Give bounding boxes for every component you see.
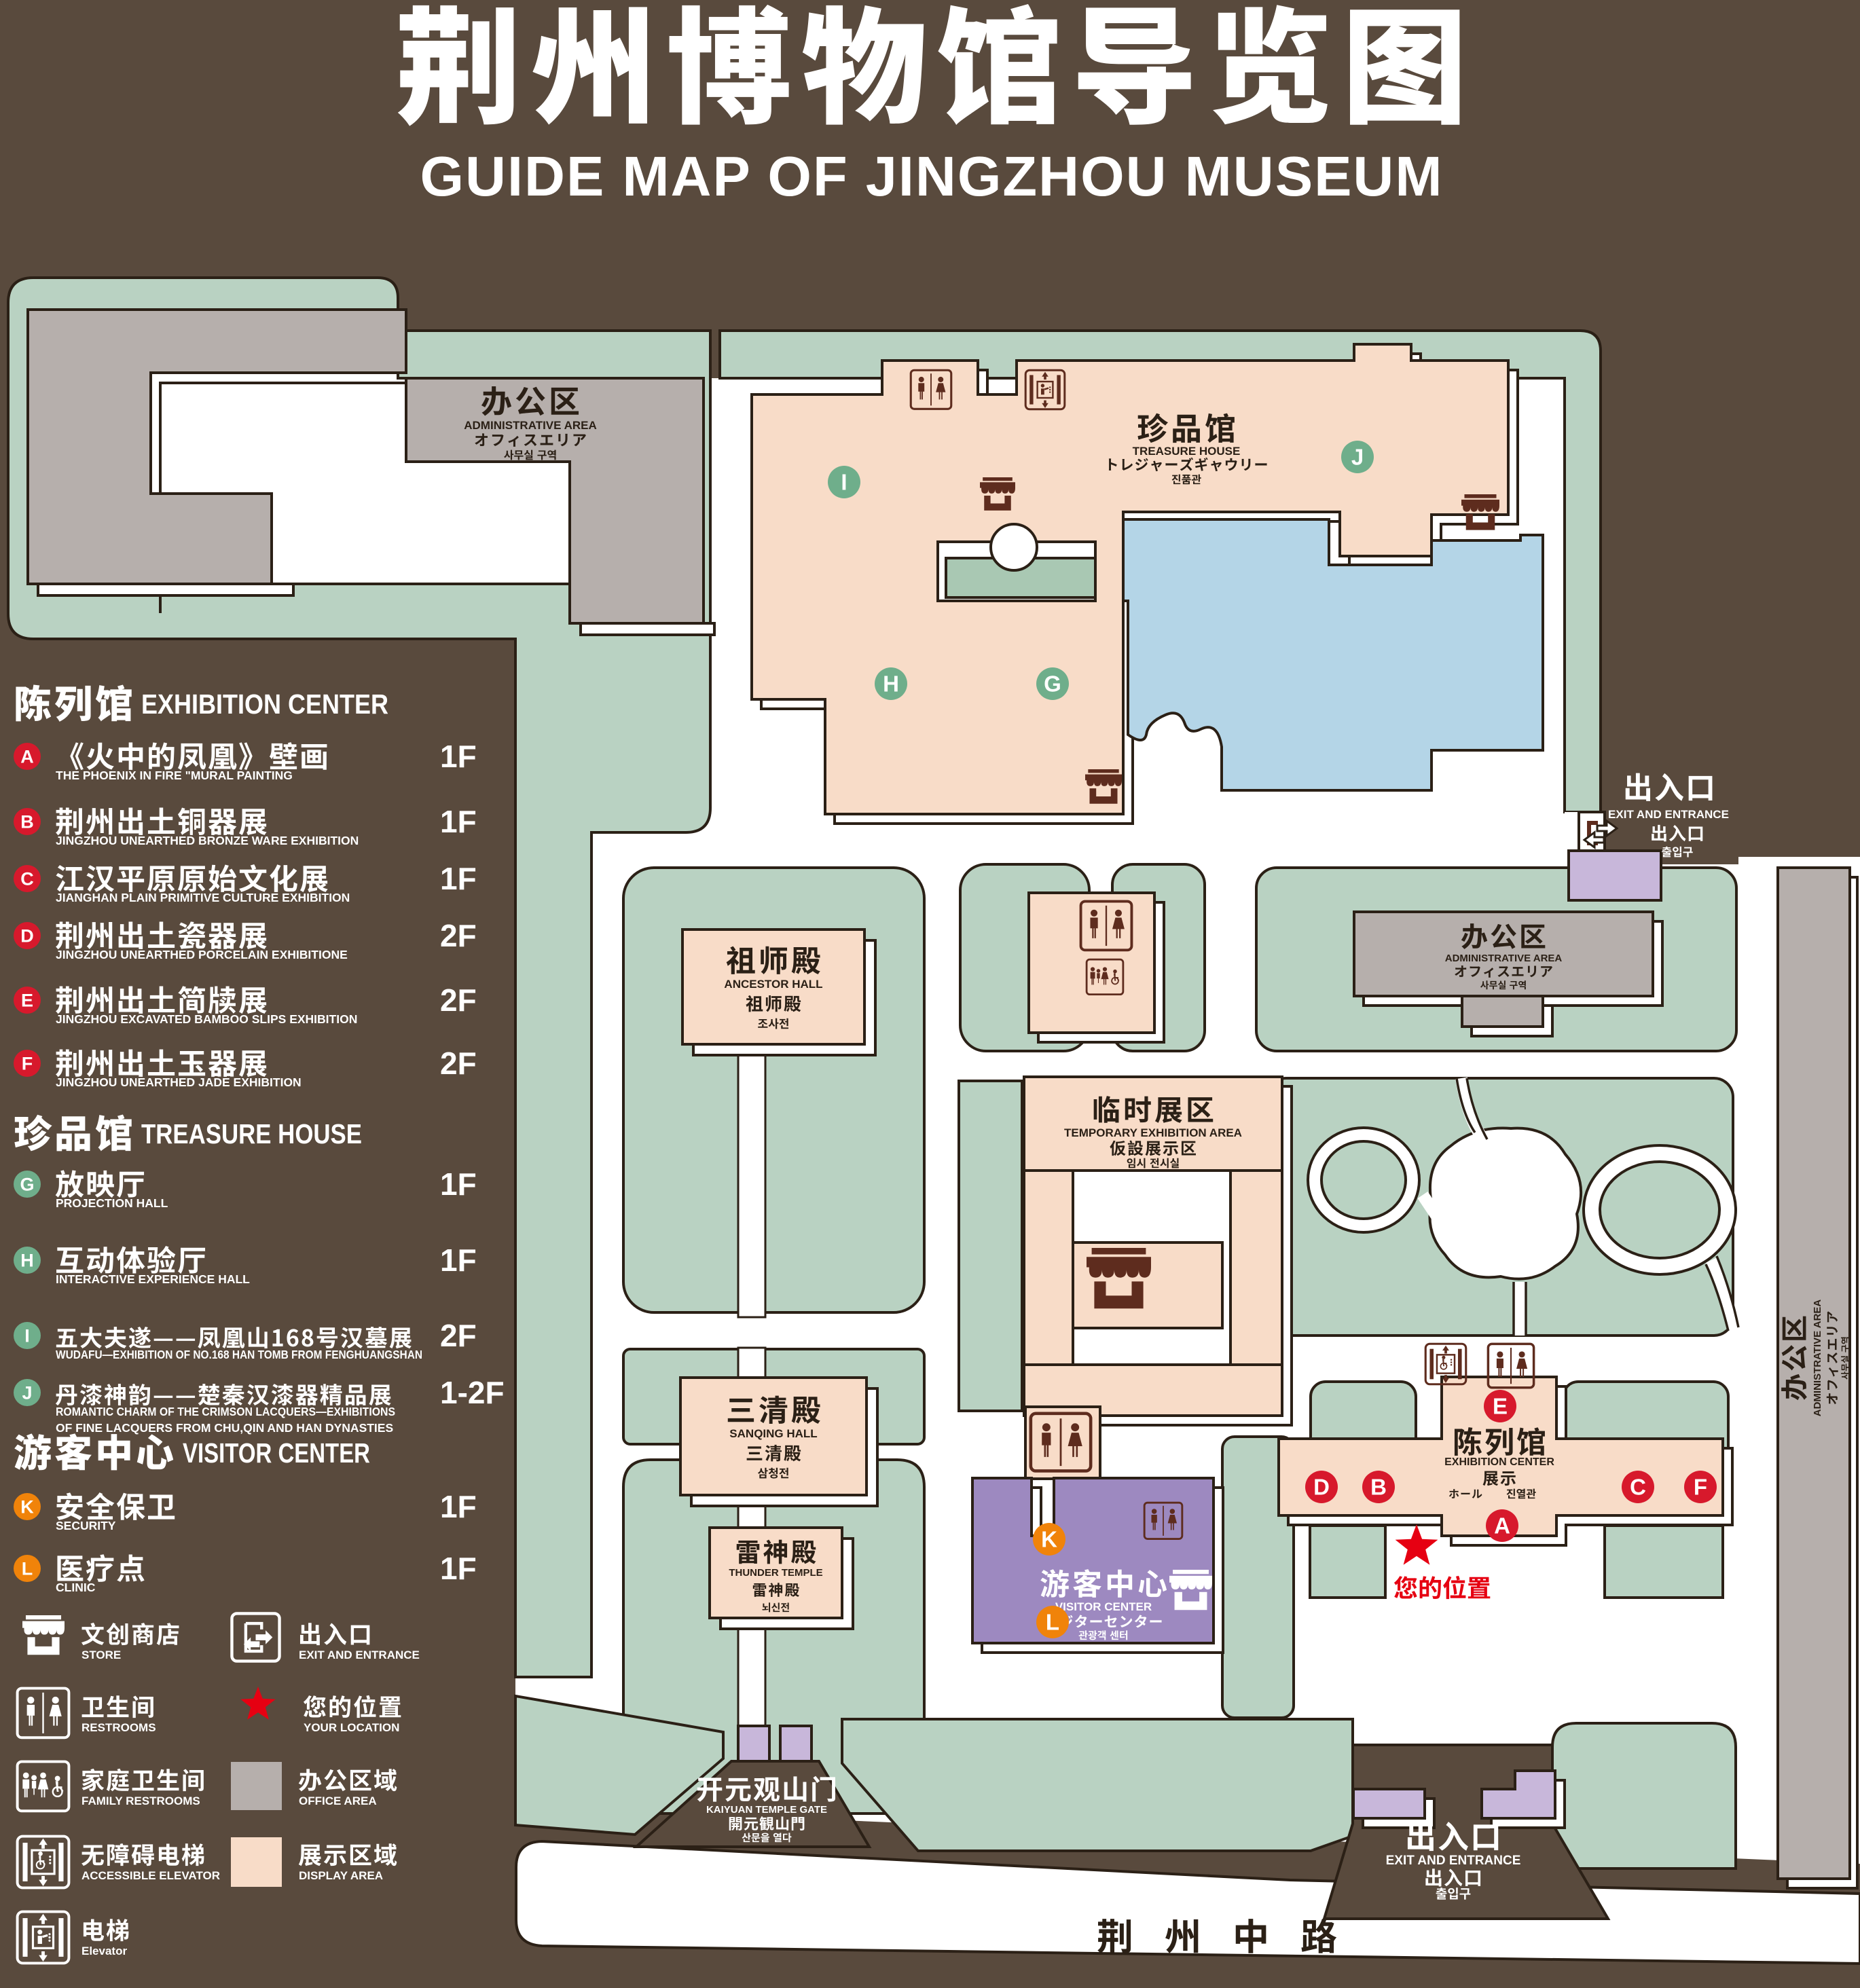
svg-text:E: E [1493, 1394, 1508, 1419]
svg-text:THUNDER TEMPLE: THUNDER TEMPLE [729, 1567, 822, 1579]
svg-text:JINGZHOU UNEARTHED JADE EXHIBI: JINGZHOU UNEARTHED JADE EXHIBITION [56, 1075, 302, 1089]
svg-text:ANCESTOR HALL: ANCESTOR HALL [724, 978, 822, 991]
svg-text:L: L [22, 1559, 33, 1579]
svg-text:G: G [20, 1175, 34, 1195]
svg-text:K: K [20, 1497, 34, 1517]
svg-text:STORE: STORE [81, 1649, 121, 1661]
svg-text:TREASURE HOUSE: TREASURE HOUSE [141, 1118, 362, 1149]
svg-text:OF FINE LACQUERS FROM CHU,QIN: OF FINE LACQUERS FROM CHU,QIN AND HAN DY… [56, 1421, 393, 1435]
svg-text:ADMINISTRATIVE AREA: ADMINISTRATIVE AREA [1812, 1300, 1823, 1417]
svg-text:I: I [841, 470, 847, 495]
svg-text:B: B [20, 812, 34, 832]
svg-text:D: D [20, 926, 34, 946]
svg-text:1F: 1F [440, 1242, 477, 1278]
svg-text:ROMANTIC CHARM OF THE CRIMSON: ROMANTIC CHARM OF THE CRIMSON LACQUERS—E… [56, 1405, 395, 1418]
svg-text:2F: 2F [440, 1046, 477, 1081]
svg-text:C: C [1630, 1475, 1646, 1500]
svg-text:TEMPORARY EXHIBITION AREA: TEMPORARY EXHIBITION AREA [1064, 1126, 1242, 1139]
svg-text:YOUR LOCATION: YOUR LOCATION [304, 1721, 399, 1734]
svg-text:THE PHOENIX IN FIRE "MURAL PAI: THE PHOENIX IN FIRE "MURAL PAINTING [56, 769, 293, 782]
svg-text:1F: 1F [440, 804, 477, 839]
svg-text:J: J [22, 1383, 32, 1403]
svg-text:2F: 2F [440, 918, 477, 953]
svg-text:SANQING HALL: SANQING HALL [729, 1427, 817, 1440]
svg-text:RESTROOMS: RESTROOMS [81, 1721, 156, 1734]
svg-text:1F: 1F [440, 1551, 477, 1586]
svg-text:VISITOR CENTER: VISITOR CENTER [183, 1437, 370, 1469]
svg-text:J: J [1351, 445, 1364, 470]
svg-text:TREASURE HOUSE: TREASURE HOUSE [1133, 445, 1241, 458]
svg-text:EXHIBITION CENTER: EXHIBITION CENTER [141, 688, 388, 720]
svg-text:H: H [883, 671, 899, 697]
svg-text:F: F [22, 1054, 33, 1074]
svg-text:OFFICE AREA: OFFICE AREA [299, 1794, 377, 1807]
svg-text:VISITOR CENTER: VISITOR CENTER [1055, 1600, 1152, 1613]
svg-text:CLINIC: CLINIC [56, 1581, 96, 1594]
svg-text:E: E [21, 991, 33, 1011]
svg-text:1F: 1F [440, 739, 477, 774]
svg-text:JINGZHOU UNEARTHED BRONZE WARE: JINGZHOU UNEARTHED BRONZE WARE EXHIBITIO… [56, 834, 359, 847]
svg-text:2F: 2F [440, 982, 477, 1018]
svg-text:ADMINISTRATIVE AREA: ADMINISTRATIVE AREA [1445, 953, 1563, 964]
svg-text:I: I [24, 1326, 30, 1346]
svg-text:PROJECTION HALL: PROJECTION HALL [56, 1196, 168, 1210]
svg-text:JINGZHOU UNEARTHED PORCELAIN E: JINGZHOU UNEARTHED PORCELAIN EXHIBITIONE [56, 948, 348, 961]
svg-text:KAIYUAN TEMPLE GATE: KAIYUAN TEMPLE GATE [706, 1804, 827, 1816]
svg-text:EXIT AND ENTRANCE: EXIT AND ENTRANCE [299, 1649, 420, 1661]
svg-text:JINGZHOU EXCAVATED BAMBOO SLIP: JINGZHOU EXCAVATED BAMBOO SLIPS EXHIBITI… [56, 1012, 357, 1026]
svg-text:GUIDE MAP OF JINGZHOU MUSEUM: GUIDE MAP OF JINGZHOU MUSEUM [420, 145, 1443, 208]
svg-text:DISPLAY AREA: DISPLAY AREA [299, 1869, 383, 1882]
svg-text:1-2F: 1-2F [440, 1375, 505, 1410]
svg-text:B: B [1370, 1475, 1387, 1500]
svg-text:EXIT AND ENTRANCE: EXIT AND ENTRANCE [1608, 808, 1729, 821]
svg-text:2F: 2F [440, 1318, 477, 1353]
svg-text:WUDAFU—EXHIBITION OF NO.168 HA: WUDAFU—EXHIBITION OF NO.168 HAN TOMB FRO… [56, 1348, 422, 1361]
svg-text:EXIT AND ENTRANCE: EXIT AND ENTRANCE [1386, 1854, 1521, 1868]
svg-text:G: G [1044, 671, 1061, 697]
svg-text:EXHIBITION CENTER: EXHIBITION CENTER [1444, 1456, 1554, 1468]
svg-text:FAMILY RESTROOMS: FAMILY RESTROOMS [81, 1794, 200, 1807]
svg-text:K: K [1041, 1527, 1057, 1552]
svg-text:F: F [1694, 1475, 1707, 1500]
svg-text:INTERACTIVE EXPERIENCE HALL: INTERACTIVE EXPERIENCE HALL [56, 1272, 250, 1286]
svg-text:A: A [1494, 1513, 1510, 1539]
svg-text:L: L [1046, 1610, 1059, 1635]
svg-text:1F: 1F [440, 1489, 477, 1524]
svg-text:C: C [20, 869, 34, 889]
svg-text:1F: 1F [440, 1166, 477, 1202]
svg-text:D: D [1313, 1475, 1330, 1500]
svg-text:Elevator: Elevator [81, 1945, 127, 1957]
svg-text:ADMINISTRATIVE AREA: ADMINISTRATIVE AREA [464, 419, 597, 432]
svg-text:JIANGHAN PLAIN PRIMITIVE CULTU: JIANGHAN PLAIN PRIMITIVE CULTURE EXHIBIT… [56, 891, 350, 904]
svg-text:ACCESSIBLE ELEVATOR: ACCESSIBLE ELEVATOR [81, 1869, 220, 1882]
svg-text:1F: 1F [440, 861, 477, 896]
svg-text:A: A [20, 747, 34, 767]
svg-text:SECURITY: SECURITY [56, 1519, 116, 1532]
svg-text:H: H [20, 1251, 34, 1271]
